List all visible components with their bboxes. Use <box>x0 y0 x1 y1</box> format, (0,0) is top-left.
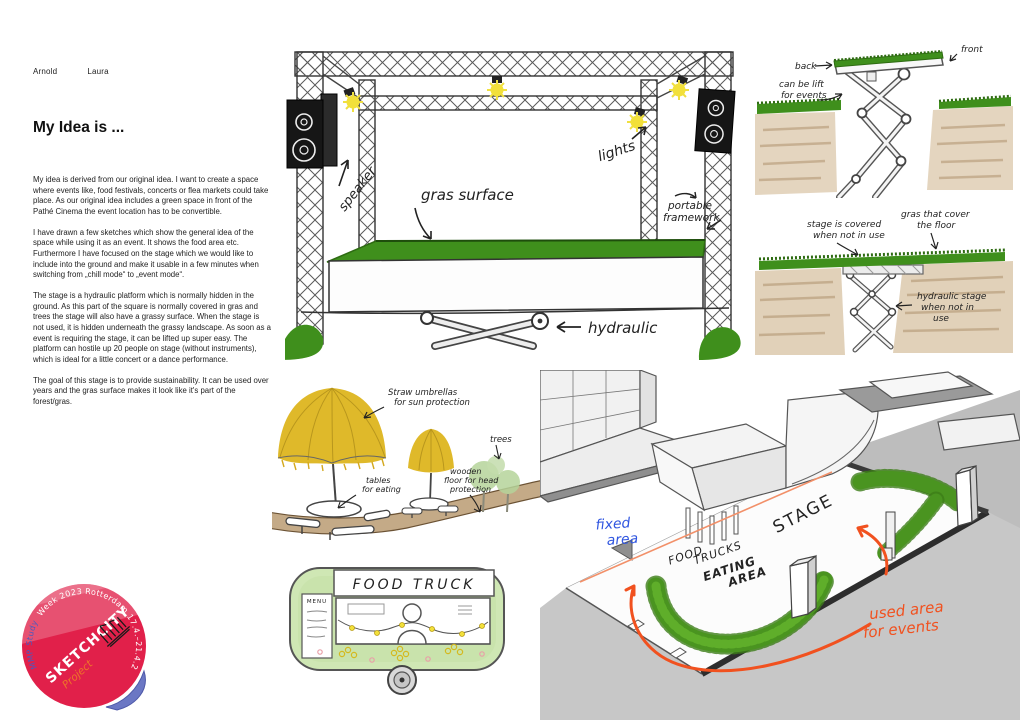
hydraulic-note-line-3: use <box>933 314 949 324</box>
food-truck-sketch: FOOD TRUCK MENU <box>282 556 522 714</box>
trees-label: trees <box>490 435 512 445</box>
covered-note-line-2: when not in use <box>813 231 885 241</box>
site-plan-sketch: fixed area FOOD TRUCKS STAGE EATING AREA… <box>540 370 1020 720</box>
food-area-sketch: Straw umbrellas for sun protection table… <box>272 378 545 566</box>
hydraulic-scissor <box>421 312 548 346</box>
sketchcity-sticker: MMP Study Week 2023 Rotterdam 17.4.–21.4… <box>16 576 156 718</box>
gras-surface-label: gras surface <box>421 186 514 204</box>
speaker-left <box>287 94 337 168</box>
scissor-lift-lowered-sketch: stage is covered when not in use gras th… <box>755 195 1015 360</box>
lights-label: lights <box>596 138 637 165</box>
tables-note-line-1: tables <box>366 476 390 485</box>
poster-page: Arnold Laura My Idea is ... My idea is d… <box>0 0 1023 723</box>
scissor-mechanism <box>839 69 911 198</box>
umbrella-note-line-2: for sun protection <box>394 398 470 408</box>
menu-board-text: MENU <box>307 599 327 605</box>
speaker-arrow <box>339 160 348 186</box>
gras-note-line-2: the floor <box>917 221 956 231</box>
gras-note-arrow <box>931 233 938 249</box>
lift-note-line-1: can be lift <box>779 80 824 90</box>
author-name-2: Laura <box>87 67 108 76</box>
hydraulic-arrow <box>557 322 581 332</box>
author-name-1: Arnold <box>33 67 57 76</box>
paragraph-4: The goal of this stage is to provide sus… <box>33 376 272 408</box>
stage-sketch: speaker gras surface lights portable fra… <box>285 40 745 360</box>
gras-surface-arrow <box>415 208 431 239</box>
covered-note-line-1: stage is covered <box>807 220 881 230</box>
paragraph-3: The stage is a hydraulic platform which … <box>33 291 272 366</box>
menu-board: MENU <box>302 594 332 658</box>
umbrella-note-line-1: Straw umbrellas <box>388 388 458 398</box>
back-label: back <box>795 62 817 72</box>
page-title: My Idea is ... <box>33 119 124 137</box>
portable-framework-label-1: portable <box>667 200 712 212</box>
article-body: My idea is derived from our original ide… <box>33 175 272 418</box>
food-truck-sign-text: FOOD TRUCK <box>353 577 476 593</box>
stage-platform <box>301 240 729 313</box>
paragraph-1: My idea is derived from our original ide… <box>33 175 272 218</box>
tables-note-line-2: for eating <box>362 485 401 494</box>
floor-note-line-1: wooden <box>450 467 481 476</box>
scissor-mechanism <box>847 272 896 351</box>
floor-note-line-3: protection <box>449 485 491 494</box>
front-label: front <box>961 45 983 55</box>
front-arrow <box>950 54 957 61</box>
authors: Arnold Laura <box>33 67 109 76</box>
serving-window <box>336 598 490 644</box>
fixed-area-label-2: area <box>606 531 639 549</box>
truck-wheel <box>388 666 416 694</box>
covered-note-arrow <box>837 243 858 255</box>
speaker-right <box>695 89 735 153</box>
truck-sign: FOOD TRUCK <box>334 570 494 596</box>
portable-framework-label-2: framework <box>663 212 720 224</box>
floor-note-line-2: floor for head <box>444 476 499 485</box>
paragraph-2: I have drawn a few sketches which show t… <box>33 228 272 281</box>
scissor-lift-raised-sketch: front back can be lift for events <box>755 40 1013 198</box>
vendor-person <box>403 604 421 622</box>
hydraulic-note-line-2: when not in <box>921 303 974 313</box>
hydraulic-note-line-1: hydraulic stage <box>917 292 987 302</box>
gras-note-line-1: gras that cover <box>901 210 971 220</box>
hydraulic-label: hydraulic <box>588 319 658 337</box>
back-arrow <box>815 62 832 69</box>
